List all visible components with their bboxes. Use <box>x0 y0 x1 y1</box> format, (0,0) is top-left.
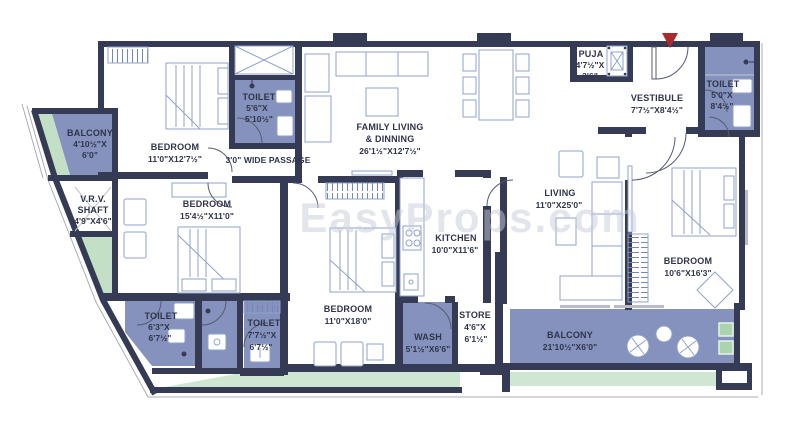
label-toilet-4-dims1: 7'7½"X <box>248 330 277 340</box>
label-toilet-4-dims2: 6'7½" <box>249 342 272 352</box>
label-puja-dims1: 4'7½"X <box>576 60 605 70</box>
label-bedroom-4-name: BEDROOM <box>664 256 712 266</box>
label-bedroom-3-dims: 11'0"X18'0" <box>325 316 372 326</box>
label-bedroom-4-dims: 10'6"X16'3" <box>664 268 711 278</box>
label-family-living-dims: 26'1½"X12'7½" <box>359 146 421 156</box>
label-bedroom-3-name: BEDROOM <box>324 304 372 314</box>
label-puja-dims2: 3'6" <box>582 71 598 81</box>
label-toilet-3-name: TOILET <box>144 311 177 321</box>
label-bedroom-2-dims: 15'4½"X11'0" <box>180 211 234 221</box>
label-vrv-dims: 4'9"X4'6" <box>74 216 112 226</box>
label-store-dims2: 6'1½" <box>464 334 487 344</box>
label-vrv-name: V.R.V. <box>80 194 106 204</box>
label-balcony-left-dims2: 6'0" <box>82 150 98 160</box>
label-balcony-main-name: BALCONY <box>547 330 593 340</box>
label-toilet-1-dims1: 5'6"X <box>246 103 268 113</box>
label-vestibule-dims: 7'7½"X8'4½" <box>631 105 683 115</box>
label-family-living-name: FAMILY LIVING <box>356 122 423 132</box>
label-balcony-left-dims1: 4'10½"X <box>73 139 107 149</box>
label-toilet-4-name: TOILET <box>247 318 280 328</box>
label-toilet-3-dims2: 6'7½" <box>148 333 171 343</box>
watermark: EasyProps.com <box>299 194 640 241</box>
label-store-name: STORE <box>459 310 491 320</box>
label-toilet-2-name: TOILET <box>706 79 739 89</box>
label-bedroom-1-dims: 11'0"X12'7½" <box>148 154 202 164</box>
label-toilet-2-dims1: 5'0"X <box>711 90 733 100</box>
label-balcony-left-name: BALCONY <box>67 128 113 138</box>
floor-plan: BALCONY 4'10½"X 6'0" BEDROOM 11'0"X12'7½… <box>0 0 800 421</box>
label-store-dims1: 4'6"X <box>464 322 486 332</box>
label-passage: 3'0" WIDE PASSAGE <box>225 155 310 165</box>
label-vestibule-name: VESTIBULE <box>631 93 683 103</box>
floor-plan-page: BALCONY 4'10½"X 6'0" BEDROOM 11'0"X12'7½… <box>0 0 800 421</box>
label-toilet-3-dims1: 6'3"X <box>148 322 170 332</box>
label-wash-dims: 5'1½"X6'6" <box>406 344 451 354</box>
label-vrv-name2: SHAFT <box>78 205 109 215</box>
label-bedroom-1-name: BEDROOM <box>151 142 199 152</box>
label-toilet-1-name: TOILET <box>242 92 275 102</box>
label-toilet-2-dims2: 8'4½" <box>710 101 733 111</box>
label-toilet-1-dims2: 5'10½" <box>245 114 273 124</box>
label-puja-name: PUJA <box>579 49 604 59</box>
label-family-living-name2: & DINNING <box>366 134 415 144</box>
label-kitchen-dims: 10'0"X11'6" <box>432 245 479 255</box>
label-balcony-main-dims: 21'10½"X6'0" <box>543 342 597 352</box>
label-wash-name: WASH <box>414 332 442 342</box>
label-bedroom-2-name: BEDROOM <box>183 199 231 209</box>
